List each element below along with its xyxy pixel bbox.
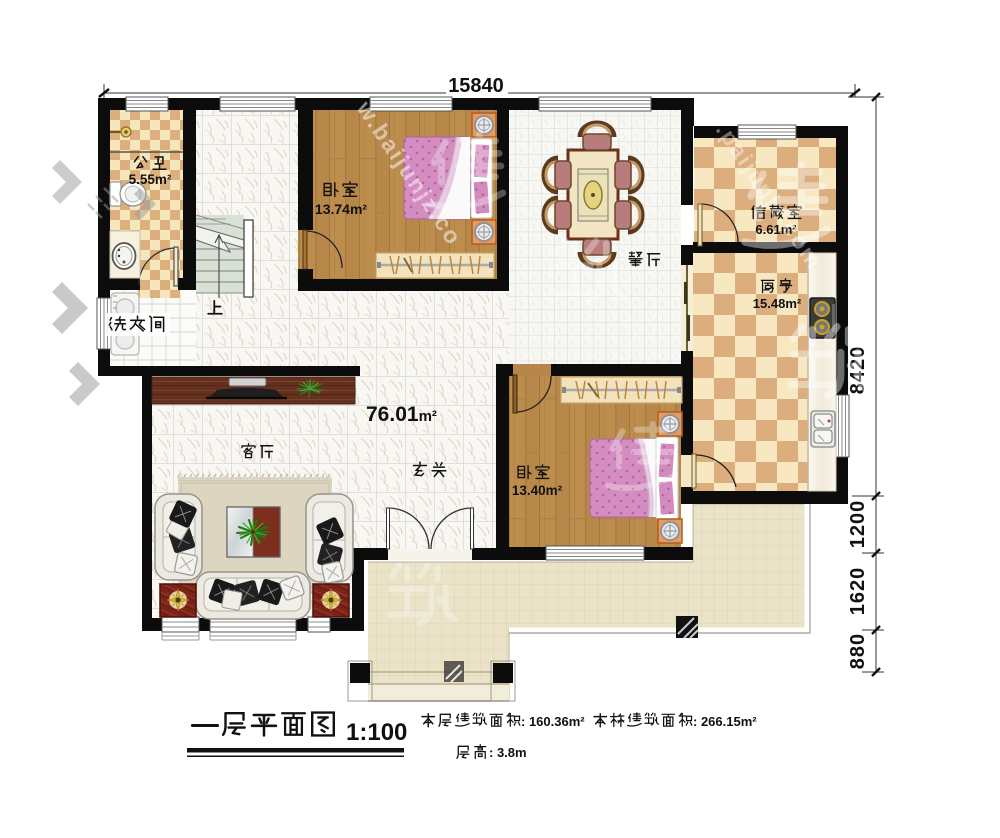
svg-text:13.74m²: 13.74m² [315, 201, 367, 217]
svg-text:880: 880 [847, 633, 869, 669]
svg-text:1620: 1620 [847, 567, 869, 616]
svg-text:: 3.8m: : 3.8m [489, 745, 527, 760]
svg-text:: 266.15m²: : 266.15m² [693, 714, 757, 729]
svg-text:15.48m²: 15.48m² [753, 296, 802, 311]
svg-text:13.40m²: 13.40m² [512, 483, 563, 498]
svg-text:5.55m²: 5.55m² [129, 172, 172, 187]
svg-text:1200: 1200 [847, 500, 869, 549]
svg-text:1:100: 1:100 [346, 719, 407, 746]
svg-text:: 160.36m²: : 160.36m² [521, 714, 585, 729]
svg-text:15840: 15840 [448, 75, 504, 97]
